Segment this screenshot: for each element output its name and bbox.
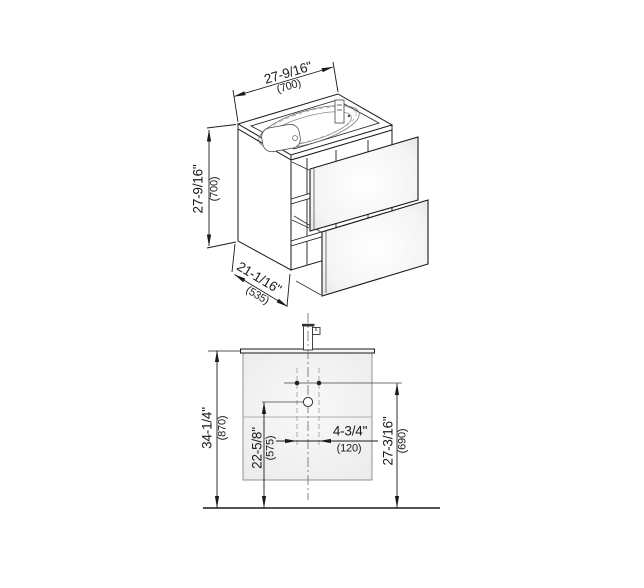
elevation-view — [203, 313, 440, 508]
label-overall-height-mm: (870) — [218, 416, 229, 441]
supply-hole-right — [317, 381, 322, 386]
label-drain-height-mm: (575) — [266, 436, 277, 461]
label-supply-spacing-inches: 4-3/4" — [333, 424, 367, 438]
drawing-canvas — [0, 0, 644, 588]
technical-drawing: 27-9/16" (700) 27-9/16" (700) 21-1/16" (… — [0, 0, 644, 588]
faucet — [302, 325, 320, 350]
label-iso-height-inches: 27-9/16" — [191, 165, 205, 214]
label-supply-spacing-mm: (120) — [337, 444, 362, 455]
label-overall-height-inches: 34-1/4" — [200, 407, 214, 449]
label-supply-height-mm: (690) — [398, 429, 409, 454]
label-supply-height-inches: 27-3/16" — [381, 417, 395, 466]
label-iso-height-mm: (700) — [210, 177, 221, 202]
supply-hole-left — [295, 381, 300, 386]
label-drain-height-inches: 22-5/8" — [250, 427, 264, 469]
